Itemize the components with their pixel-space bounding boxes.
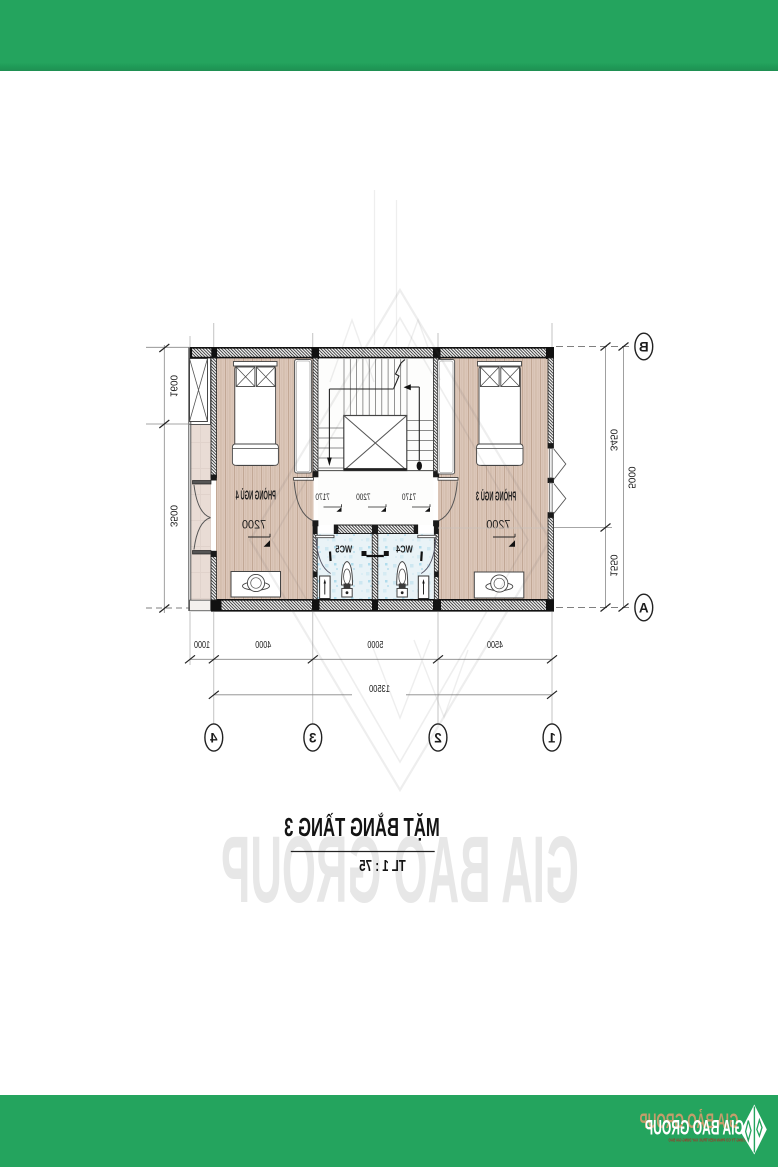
svg-text:1000: 1000 <box>194 639 210 650</box>
svg-text:5000: 5000 <box>626 466 637 489</box>
svg-text:1: 1 <box>548 731 556 746</box>
svg-text:3500: 3500 <box>168 504 179 527</box>
svg-text:7200: 7200 <box>356 492 371 503</box>
svg-text:GIA BAO GROUP: GIA BAO GROUP <box>645 1116 744 1139</box>
svg-text:CONG TY CO PHAN KIEN TRUC XAY: CONG TY CO PHAN KIEN TRUC XAY DUNG GIA B… <box>668 1138 745 1143</box>
svg-text:4000: 4000 <box>255 639 271 650</box>
svg-text:WC4: WC4 <box>395 543 413 554</box>
svg-text:TL 1 : 75: TL 1 : 75 <box>359 856 406 874</box>
svg-text:PHÒNG NGỦ 4: PHÒNG NGỦ 4 <box>235 488 276 503</box>
svg-text:4: 4 <box>210 731 218 746</box>
svg-text:3450: 3450 <box>608 428 619 451</box>
svg-text:WC5: WC5 <box>335 543 352 554</box>
svg-text:A: A <box>639 601 649 616</box>
svg-text:7170: 7170 <box>402 492 417 503</box>
svg-text:3: 3 <box>309 731 317 746</box>
svg-text:B: B <box>639 340 649 355</box>
svg-text:7200: 7200 <box>486 519 510 531</box>
svg-text:1550: 1550 <box>608 554 619 577</box>
svg-text:1600: 1600 <box>168 374 179 397</box>
svg-text:MẶT BẰNG TẦNG 3: MẶT BẰNG TẦNG 3 <box>284 812 440 842</box>
svg-text:PHÒNG NGỦ 3: PHÒNG NGỦ 3 <box>476 489 517 504</box>
svg-text:7170: 7170 <box>315 492 330 503</box>
